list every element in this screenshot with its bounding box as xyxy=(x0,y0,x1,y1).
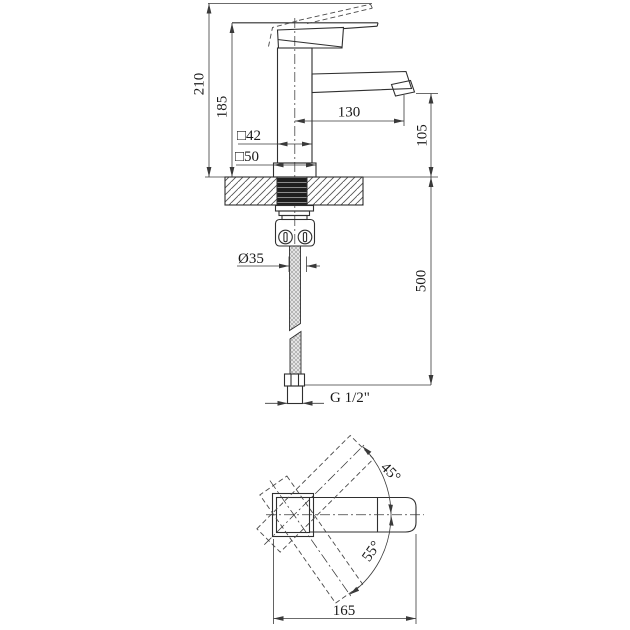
spout-outline xyxy=(312,72,412,93)
technical-drawing-faucet: 210 185 130 105 □42 □50 xyxy=(0,0,630,630)
angle-45-label: 45° xyxy=(377,460,403,486)
arc-mid-arrow-up xyxy=(388,504,393,514)
dim-130-label: 130 xyxy=(338,105,361,121)
cap-diagonal xyxy=(278,40,343,48)
raised-lever-end xyxy=(371,4,373,8)
bracket-slot-left xyxy=(284,233,287,242)
mount-ring-2 xyxy=(279,211,310,216)
cap-outline xyxy=(278,28,344,49)
dim-105: 105 xyxy=(363,94,438,178)
raised-lever-top xyxy=(299,4,371,20)
thread-label: G 1/2" xyxy=(330,390,370,406)
hose-nut xyxy=(285,374,305,386)
dim-165-label: 165 xyxy=(333,603,356,619)
supply-hose xyxy=(285,246,305,404)
dim-105-label: 105 xyxy=(415,124,431,147)
swing-arc: 45° 55° xyxy=(350,446,404,594)
hose-upper xyxy=(290,246,301,331)
thread-stub xyxy=(288,386,303,404)
dim-42: □42 xyxy=(237,128,312,144)
dim-130: 130 xyxy=(295,95,404,126)
dim-42-label: □42 xyxy=(237,128,261,144)
counter-hatch-right xyxy=(307,177,363,205)
bracket-slot-right xyxy=(303,233,306,242)
threaded-shank xyxy=(277,177,307,205)
dim-210-label: 210 xyxy=(192,73,208,96)
dim-165: 165 xyxy=(274,534,417,624)
dim-500: 500 xyxy=(305,177,432,385)
lever-tip xyxy=(377,23,378,26)
arc-mid-arrow-down xyxy=(389,516,394,526)
counter-hatch-left xyxy=(225,177,277,205)
dim-500-label: 500 xyxy=(414,270,430,293)
handle-position-55 xyxy=(256,471,366,608)
handle-cap xyxy=(278,28,344,49)
handle-position-45 xyxy=(253,431,378,556)
faucet-spout xyxy=(312,72,415,97)
top-view: 45° 55° 165 xyxy=(253,431,424,624)
dim-50-label: □50 xyxy=(235,149,259,165)
dim-35-label: Ø35 xyxy=(238,251,264,267)
faucet-lever xyxy=(232,23,378,29)
hose-lower xyxy=(290,332,301,375)
angle-55-label: 55° xyxy=(359,538,384,564)
side-view: 210 185 130 105 □42 □50 xyxy=(192,4,439,407)
drawing-svg: 210 185 130 105 □42 □50 xyxy=(0,0,630,630)
countertop xyxy=(225,177,363,205)
lever-bottom-edge xyxy=(344,26,377,28)
dim-185-label: 185 xyxy=(215,96,231,119)
dim-35: Ø35 xyxy=(237,251,320,272)
handle-55-centerline xyxy=(270,481,353,599)
dim-thread: G 1/2" xyxy=(265,390,370,406)
